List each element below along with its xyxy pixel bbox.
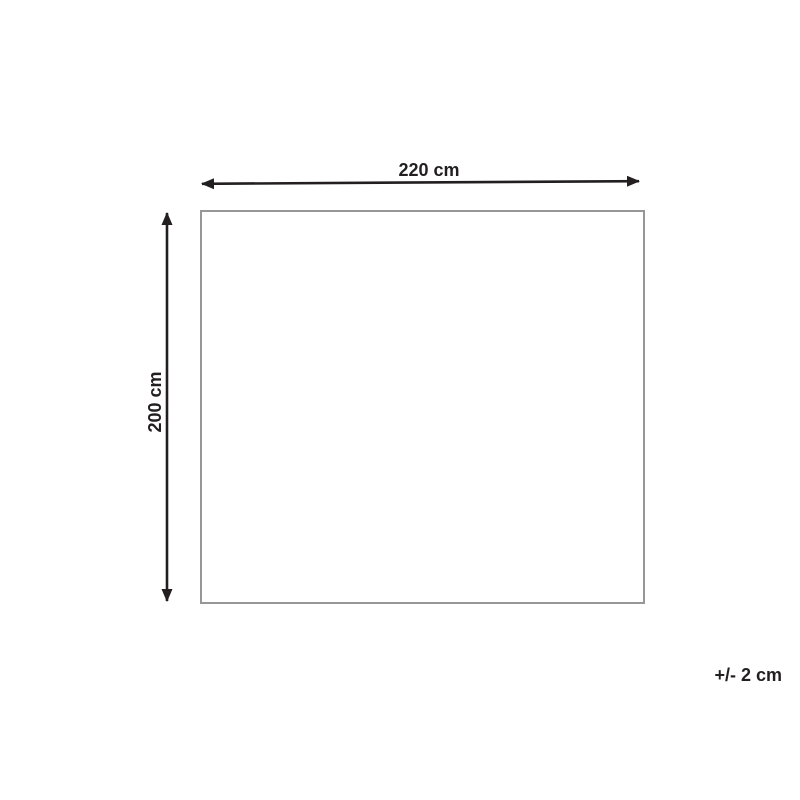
product-outline [200, 210, 645, 604]
width-dimension-label: 220 cm [398, 161, 459, 179]
dimension-diagram: 220 cm 200 cm +/- 2 cm [0, 0, 800, 800]
tolerance-label: +/- 2 cm [714, 666, 782, 684]
width-double-arrow-icon [202, 181, 639, 184]
height-dimension-label: 200 cm [146, 371, 164, 432]
